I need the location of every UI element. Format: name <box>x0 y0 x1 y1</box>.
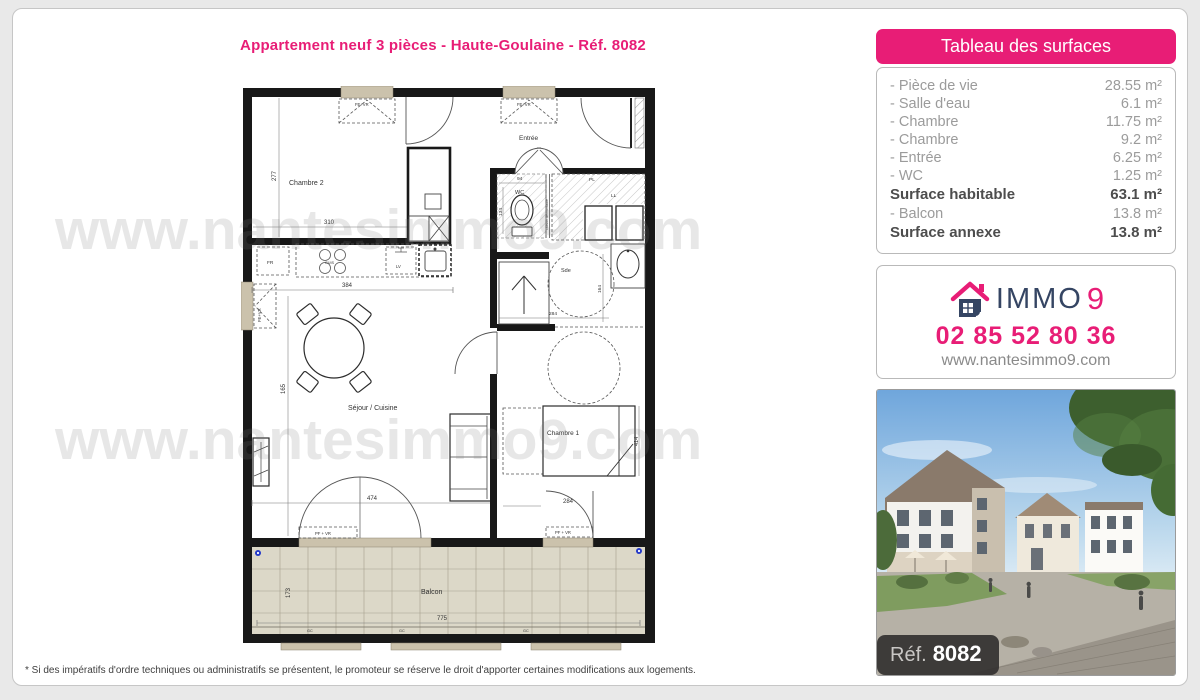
window-label: PF + VR <box>555 530 571 535</box>
dim-173: 173 <box>286 587 292 598</box>
cloison-label: cloison démontable <box>545 199 549 230</box>
window-label: FE+VR <box>257 308 262 322</box>
surface-label: - Balcon <box>890 205 943 223</box>
appliance-1 <box>585 206 612 240</box>
fixture-label-cuis: CUIS <box>325 261 335 265</box>
dim-284-ch1: 284 <box>563 499 574 505</box>
room-chambre1: Chambre 1 414 PF + VR 284 <box>503 406 640 538</box>
surface-value: 13.8 m² <box>1113 205 1162 223</box>
french-door-left <box>299 477 360 538</box>
website-link[interactable]: www.nantesimmo9.com <box>877 352 1175 370</box>
window-top-2 <box>503 86 555 98</box>
disclaimer-footnote: * Si des impératifs d'ordre techniques o… <box>25 665 696 676</box>
page-title: Appartement neuf 3 pièces - Haute-Goulai… <box>13 37 873 54</box>
faucet-glyph <box>395 248 407 252</box>
ref-label: Réf. <box>890 644 927 666</box>
wardrobe <box>408 148 450 243</box>
right-sidebar: Tableau des surfaces - Pièce de vie28.55… <box>876 9 1176 686</box>
dim-277: 277 <box>272 170 278 181</box>
surface-value: 6.1 m² <box>1121 95 1162 113</box>
surface-label: - Salle d'eau <box>890 95 970 113</box>
agency-logo: IMMO9 <box>877 278 1175 320</box>
turning-circle <box>548 251 614 317</box>
sofa <box>450 414 496 501</box>
dim-474: 474 <box>367 496 378 502</box>
dim-gc: GC <box>523 629 529 633</box>
entry-door-arc <box>581 98 631 148</box>
floor-plan: Balcon 775 173 GC GC GC <box>241 86 657 652</box>
surface-row: - Salle d'eau6.1 m² <box>890 95 1162 113</box>
fixture-label-fr: FR <box>267 260 274 266</box>
room-label-entree: Entrée <box>519 135 539 142</box>
surface-label: - Chambre <box>890 131 959 149</box>
room-entree: Entrée <box>515 98 644 174</box>
roof-right <box>1085 502 1143 510</box>
property-photo-rendering <box>877 390 1175 675</box>
dim-165: 165 <box>281 383 287 394</box>
balcony: Balcon 775 173 GC GC GC <box>252 547 645 634</box>
surface-label: - Pièce de vie <box>890 77 978 95</box>
surfaces-table: - Pièce de vie28.55 m² - Salle d'eau6.1 … <box>876 67 1176 254</box>
dining-table <box>304 318 364 378</box>
window-label: FE+VR <box>517 102 531 107</box>
house-logo-icon <box>948 278 992 320</box>
room-sejour: Séjour / Cuisine 165 <box>252 296 496 538</box>
surface-label: - WC <box>890 167 923 185</box>
surfaces-panel-header: Tableau des surfaces <box>876 29 1176 64</box>
surface-label: Surface annexe <box>890 223 1001 243</box>
dim-775: 775 <box>437 616 448 622</box>
fixture-label-pl: PL <box>589 177 595 183</box>
floor-plan-drawing: Balcon 775 173 GC GC GC <box>241 86 657 652</box>
brand-word: IMMO <box>996 283 1083 316</box>
closet-pl: PL LL <box>552 174 645 240</box>
content-card: Appartement neuf 3 pièces - Haute-Goulai… <box>12 8 1188 686</box>
surface-row-total-annexe: Surface annexe13.8 m² <box>890 223 1162 243</box>
window-balcony-door-2 <box>543 538 593 547</box>
surface-value: 1.25 m² <box>1113 167 1162 185</box>
rock <box>1032 647 1052 657</box>
room-label-wc: WC <box>515 190 524 196</box>
fixture-label-ll: LL <box>611 193 617 199</box>
window-label: FE+VR <box>355 102 369 107</box>
surface-row: - Chambre11.75 m² <box>890 113 1162 131</box>
fixture-label-lv: LV <box>396 264 401 269</box>
brand-nine: 9 <box>1087 281 1104 317</box>
bush <box>896 575 928 589</box>
phone-number[interactable]: 02 85 52 80 36 <box>877 322 1175 351</box>
surface-value: 6.25 m² <box>1113 149 1162 167</box>
ref-number: 8082 <box>933 641 982 666</box>
surface-row: - Chambre9.2 m² <box>890 131 1162 149</box>
room-label-balcon: Balcon <box>421 589 443 596</box>
appliance-2 <box>616 206 643 240</box>
surface-row-total-habitable: Surface habitable63.1 m² <box>890 185 1162 205</box>
bed <box>543 406 635 476</box>
room-label-chambre2: Chambre 2 <box>289 180 324 187</box>
room-wc: WC 94 134 cloison démontable <box>497 174 550 238</box>
toilet <box>511 195 533 225</box>
surface-label: - Entrée <box>890 149 942 167</box>
surface-row: - WC1.25 m² <box>890 167 1162 185</box>
dim-134: 134 <box>498 208 504 216</box>
reference-badge: Réf.8082 <box>877 635 999 675</box>
surface-row: - Entrée6.25 m² <box>890 149 1162 167</box>
surface-row: - Pièce de vie28.55 m² <box>890 77 1162 95</box>
dim-164: 164 <box>597 285 603 293</box>
surface-row: - Balcon13.8 m² <box>890 205 1162 223</box>
surface-value: 63.1 m² <box>1110 185 1162 205</box>
kitchen: FR CUIS LV 384 <box>252 244 453 293</box>
rock <box>1001 636 1029 648</box>
window-label: PF + VR <box>315 531 331 536</box>
dim-310: 310 <box>324 220 335 226</box>
surface-value: 28.55 m² <box>1105 77 1162 95</box>
dim-284-sde: 284 <box>549 311 557 317</box>
window-balcony-door-1 <box>299 538 431 547</box>
french-door-right <box>360 477 421 538</box>
dim-414: 414 <box>634 437 640 446</box>
surface-value: 9.2 m² <box>1121 131 1162 149</box>
surface-label: Surface habitable <box>890 185 1015 205</box>
surface-label: - Chambre <box>890 113 959 131</box>
surface-value: 11.75 m² <box>1106 113 1162 131</box>
window-left <box>241 282 253 330</box>
room-label-sde: Sde <box>561 268 571 274</box>
dim-gc: GC <box>307 629 313 633</box>
room-label-sejour: Séjour / Cuisine <box>348 405 398 412</box>
surface-value: 13.8 m² <box>1110 223 1162 243</box>
bush <box>945 572 969 584</box>
dim-94: 94 <box>517 176 523 182</box>
turning-circle <box>548 332 620 404</box>
dim-gc: GC <box>399 629 405 633</box>
room-label-chambre1: Chambre 1 <box>547 430 580 437</box>
bush <box>1114 574 1150 590</box>
property-photo: Réf.8082 <box>876 389 1176 676</box>
dim-384: 384 <box>342 283 353 289</box>
agency-card: IMMO9 02 85 52 80 36 www.nantesimmo9.com <box>876 265 1176 379</box>
window-top-1 <box>341 86 393 98</box>
sde-door-arc <box>455 332 497 374</box>
